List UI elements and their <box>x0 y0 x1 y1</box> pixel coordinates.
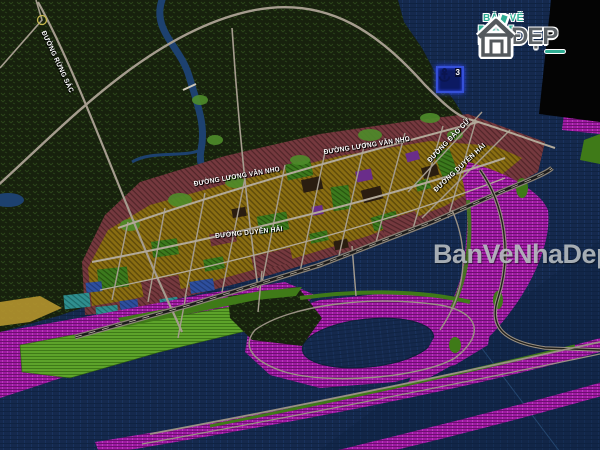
site-watermark: BanVeNhaDep.v <box>433 239 600 270</box>
logo-word-right: ĐẸP <box>511 25 557 49</box>
marker-count: 3 <box>455 68 461 77</box>
map-canvas: ĐƯỜNG RỪNG SÁC ĐƯỜNG LƯƠNG VĂN NHO ĐƯỜNG… <box>0 0 600 450</box>
house-icon <box>475 13 517 59</box>
map-marker-anchor[interactable]: 3 <box>436 66 464 93</box>
zoning-map <box>0 0 600 450</box>
anchor-icon <box>438 68 451 82</box>
logo-underline <box>545 50 565 53</box>
brand-logo: BẢN VẼ NH ĐẸP <box>477 13 597 49</box>
